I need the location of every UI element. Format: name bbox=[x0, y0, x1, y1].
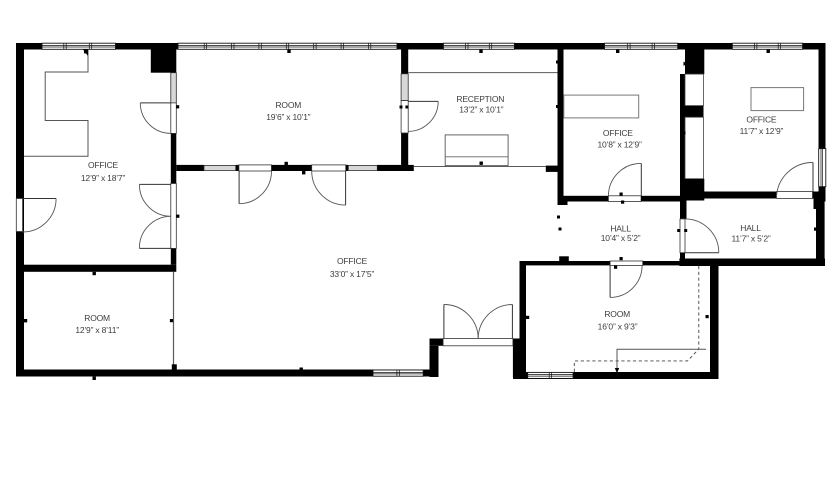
svg-text:33’0” x 17’5”: 33’0” x 17’5” bbox=[330, 269, 375, 279]
svg-text:HALL: HALL bbox=[610, 223, 631, 233]
svg-text:19’6” x 10’1”: 19’6” x 10’1” bbox=[266, 112, 311, 122]
svg-text:10’8” x 12’9”: 10’8” x 12’9” bbox=[598, 140, 643, 150]
svg-text:16’0” x 9’3”: 16’0” x 9’3” bbox=[598, 321, 638, 331]
svg-text:12’9” x 18’7”: 12’9” x 18’7” bbox=[81, 173, 126, 183]
svg-text:OFFICE: OFFICE bbox=[603, 128, 633, 138]
svg-text:13’2” x 10’1”: 13’2” x 10’1” bbox=[459, 105, 504, 115]
svg-text:12’9” x 8’11”: 12’9” x 8’11” bbox=[75, 325, 119, 335]
svg-text:OFFICE: OFFICE bbox=[337, 256, 367, 266]
svg-text:ROOM: ROOM bbox=[275, 100, 301, 110]
svg-text:OFFICE: OFFICE bbox=[746, 115, 776, 125]
svg-text:10’4” x 5’2”: 10’4” x 5’2” bbox=[601, 233, 641, 243]
svg-text:ROOM: ROOM bbox=[84, 313, 110, 323]
svg-text:HALL: HALL bbox=[740, 223, 761, 233]
svg-text:RECEPTION: RECEPTION bbox=[456, 94, 504, 104]
svg-text:11’7” x 5’2”: 11’7” x 5’2” bbox=[731, 233, 770, 243]
svg-text:11’7” x 12’9”: 11’7” x 12’9” bbox=[740, 126, 784, 136]
svg-text:ROOM: ROOM bbox=[604, 309, 630, 319]
svg-text:OFFICE: OFFICE bbox=[88, 160, 118, 170]
